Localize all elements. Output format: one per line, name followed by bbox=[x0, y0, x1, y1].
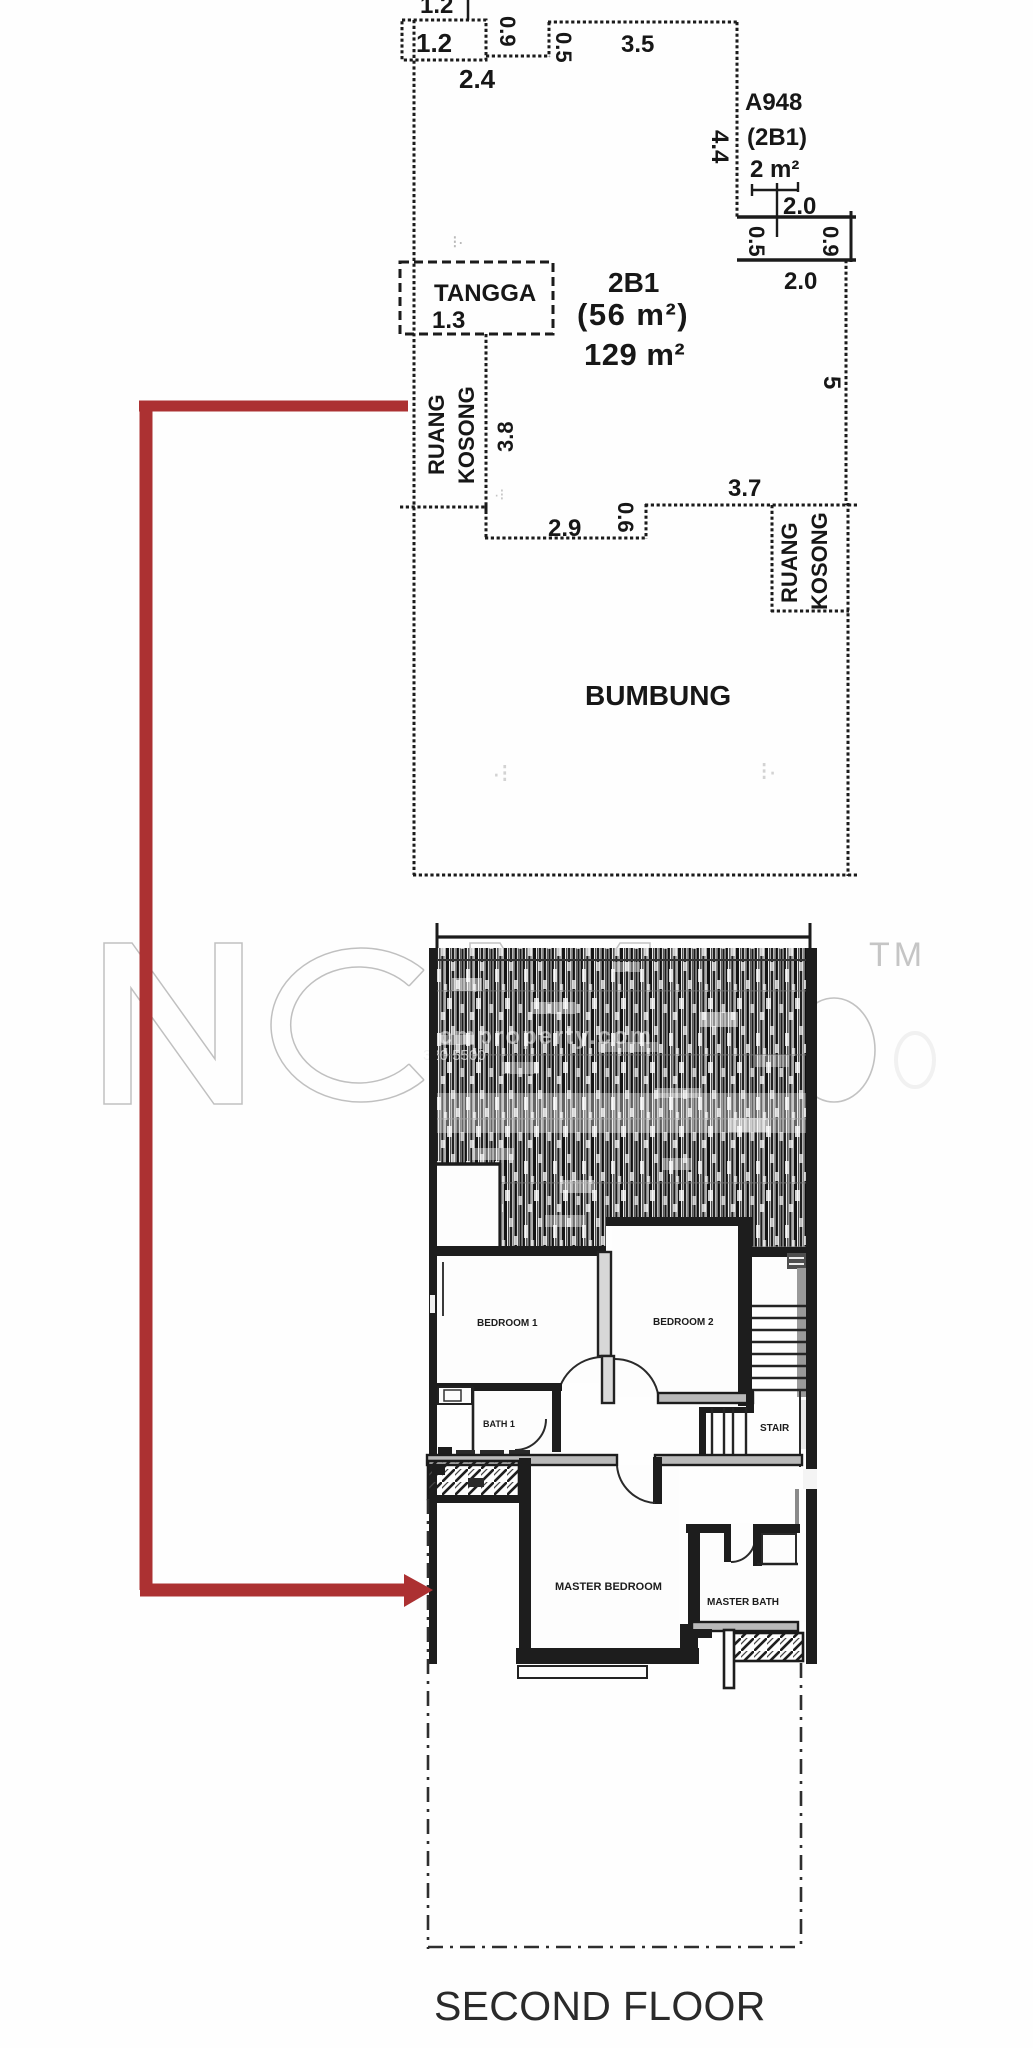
svg-text:BUMBUNG: BUMBUNG bbox=[585, 680, 731, 711]
svg-text:2.4: 2.4 bbox=[459, 64, 496, 94]
svg-text:A948: A948 bbox=[745, 89, 802, 116]
svg-text:KOSONG: KOSONG bbox=[454, 386, 479, 484]
svg-text:1.3: 1.3 bbox=[432, 307, 465, 334]
svg-text:1.2: 1.2 bbox=[420, 0, 453, 19]
svg-text:3.8: 3.8 bbox=[493, 421, 518, 452]
svg-text:5: 5 bbox=[818, 376, 845, 389]
svg-text:SECOND FLOOR: SECOND FLOOR bbox=[434, 1983, 766, 2029]
svg-text:RUANG: RUANG bbox=[777, 522, 802, 603]
svg-text:KOSONG: KOSONG bbox=[807, 512, 832, 610]
svg-text:icmproperty.com: icmproperty.com bbox=[430, 1023, 653, 1050]
svg-text:TM: TM bbox=[869, 936, 926, 974]
svg-text:⁝·: ⁝· bbox=[452, 232, 464, 252]
svg-text:STAIR: STAIR bbox=[760, 1423, 790, 1434]
svg-text:0.9: 0.9 bbox=[495, 16, 520, 47]
svg-text:2.9: 2.9 bbox=[548, 515, 581, 542]
svg-text:MASTER BATH: MASTER BATH bbox=[707, 1597, 779, 1608]
svg-text:TANGGA: TANGGA bbox=[434, 280, 536, 307]
svg-text:·⁝: ·⁝ bbox=[494, 487, 504, 504]
svg-text:(56 m²): (56 m²) bbox=[577, 297, 689, 332]
svg-text:2B1: 2B1 bbox=[608, 267, 659, 298]
svg-text:3.7: 3.7 bbox=[728, 475, 761, 502]
svg-text:2 m²: 2 m² bbox=[750, 156, 799, 183]
svg-text:0.9: 0.9 bbox=[818, 226, 843, 257]
svg-text:2.0: 2.0 bbox=[784, 268, 817, 295]
svg-text:4.4: 4.4 bbox=[706, 130, 733, 164]
svg-text:BEDROOM 1: BEDROOM 1 bbox=[477, 1318, 538, 1329]
svg-text:(2B1): (2B1) bbox=[747, 124, 807, 151]
svg-text:·⁝: ·⁝ bbox=[492, 758, 509, 788]
svg-text:0.5: 0.5 bbox=[744, 226, 769, 257]
svg-text:0.5: 0.5 bbox=[551, 32, 576, 63]
svg-text:129 m²: 129 m² bbox=[584, 337, 685, 372]
svg-text:BATH 1: BATH 1 bbox=[483, 1419, 515, 1429]
svg-text:1.2: 1.2 bbox=[416, 28, 452, 58]
svg-text:0.6: 0.6 bbox=[613, 502, 638, 533]
svg-text:3.5: 3.5 bbox=[621, 31, 654, 58]
svg-text:MASTER BEDROOM: MASTER BEDROOM bbox=[555, 1581, 662, 1593]
svg-text:⁝·: ⁝· bbox=[760, 756, 777, 786]
svg-text:RUANG: RUANG bbox=[424, 394, 449, 475]
svg-text:BEDROOM 2: BEDROOM 2 bbox=[653, 1317, 714, 1328]
